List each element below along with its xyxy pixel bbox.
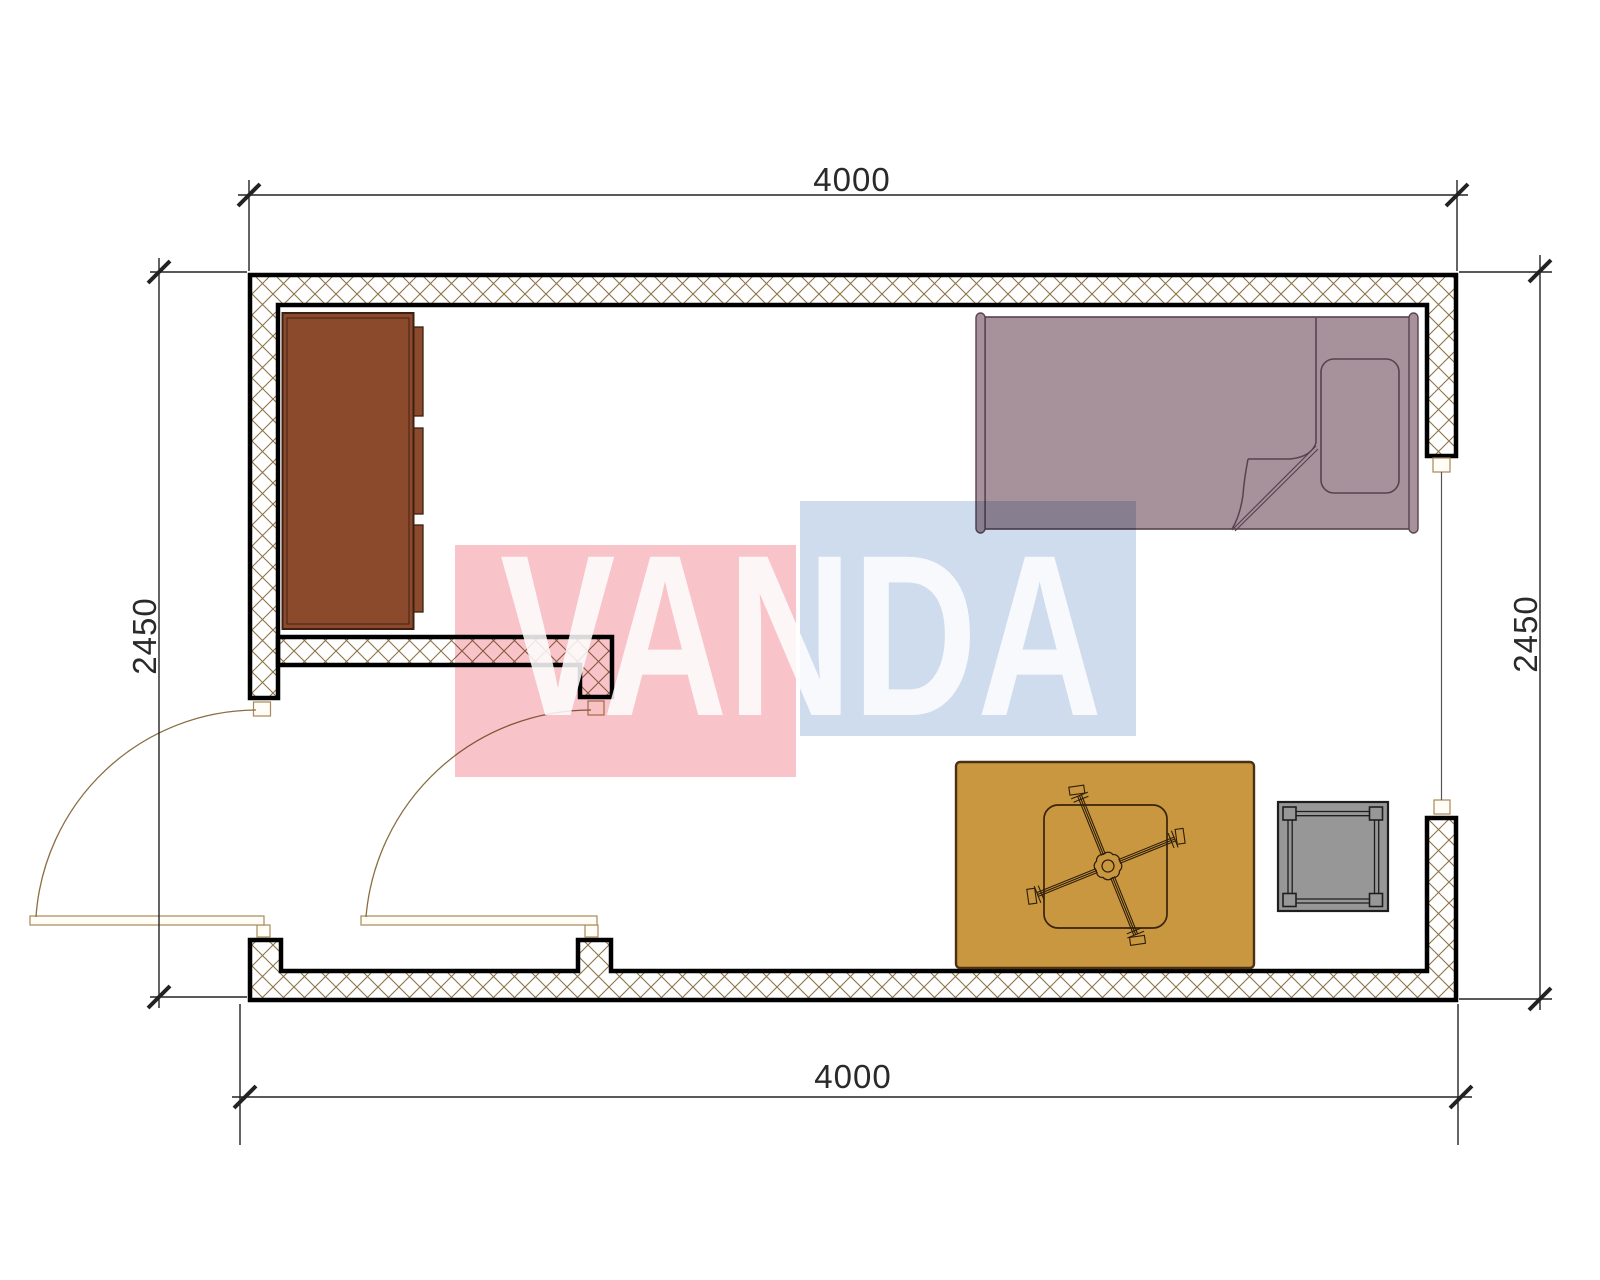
svg-text:4000: 4000 [813,161,890,198]
svg-text:2450: 2450 [1507,595,1544,672]
svg-text:VANDA: VANDA [500,508,1102,765]
svg-text:4000: 4000 [814,1058,891,1095]
svg-text:2450: 2450 [126,597,163,674]
